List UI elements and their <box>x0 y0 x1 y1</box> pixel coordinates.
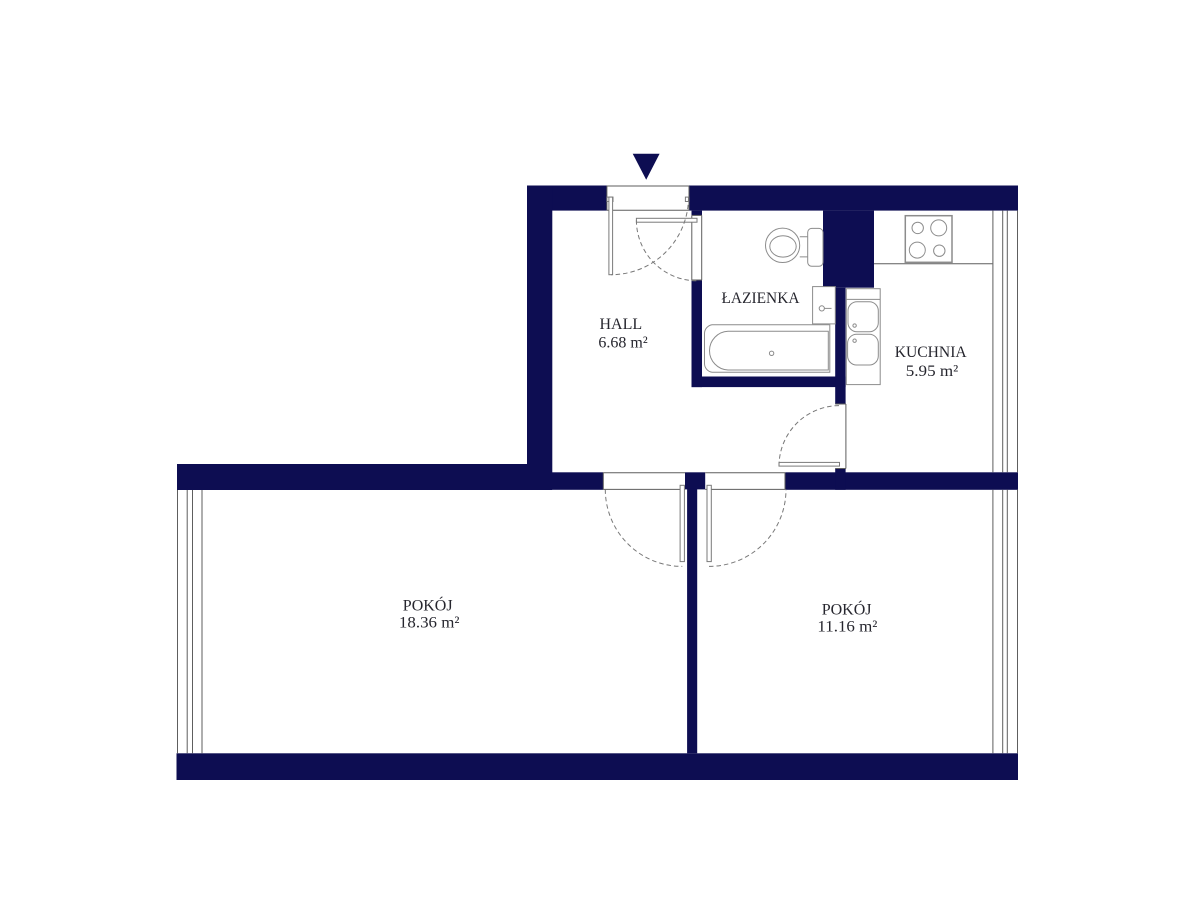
svg-text:18.36 m²: 18.36 m² <box>399 615 460 632</box>
svg-text:6.68 m²: 6.68 m² <box>598 335 647 352</box>
svg-text:ŁAZIENKA: ŁAZIENKA <box>722 290 800 307</box>
svg-text:POKÓJ: POKÓJ <box>403 595 453 614</box>
svg-text:HALL: HALL <box>599 316 642 333</box>
svg-text:11.16 m²: 11.16 m² <box>817 619 877 636</box>
svg-text:POKÓJ: POKÓJ <box>822 600 872 619</box>
svg-text:KUCHNIA: KUCHNIA <box>895 344 967 361</box>
svg-text:5.95 m²: 5.95 m² <box>906 363 959 380</box>
